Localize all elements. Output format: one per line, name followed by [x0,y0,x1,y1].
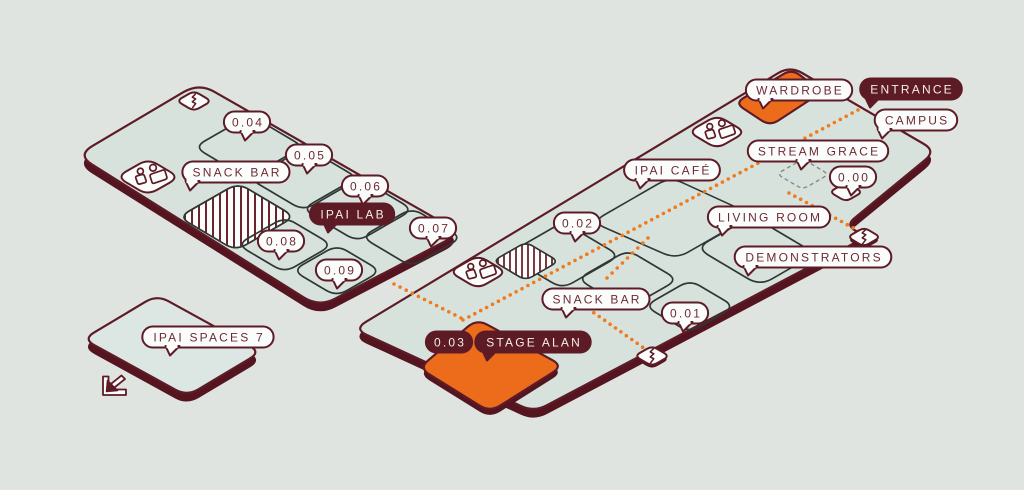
svg-text:IPAI LAB: IPAI LAB [320,207,385,221]
svg-text:0.05: 0.05 [294,148,326,162]
svg-text:CAMPUS: CAMPUS [885,113,950,127]
svg-text:IPAI CAFÉ: IPAI CAFÉ [635,162,712,177]
svg-text:0.04: 0.04 [232,115,264,129]
svg-text:ENTRANCE: ENTRANCE [870,82,954,96]
svg-text:WARDROBE: WARDROBE [756,83,844,97]
svg-text:0.00: 0.00 [838,170,870,184]
svg-text:SNACK BAR: SNACK BAR [193,165,282,179]
svg-text:0.08: 0.08 [266,234,298,248]
svg-text:0.06: 0.06 [350,179,382,193]
svg-text:0.03: 0.03 [434,335,466,349]
svg-text:SNACK BAR: SNACK BAR [553,292,642,306]
svg-text:0.01: 0.01 [670,306,702,320]
svg-text:STREAM GRACE: STREAM GRACE [758,144,880,158]
svg-text:0.02: 0.02 [562,216,594,230]
svg-text:0.07: 0.07 [418,221,450,235]
svg-text:IPAI SPACES 7: IPAI SPACES 7 [153,330,265,344]
svg-text:DEMONSTRATORS: DEMONSTRATORS [745,250,883,264]
svg-text:0.09: 0.09 [324,263,356,277]
svg-text:LIVING ROOM: LIVING ROOM [718,210,822,224]
svg-text:STAGE ALAN: STAGE ALAN [486,335,582,349]
